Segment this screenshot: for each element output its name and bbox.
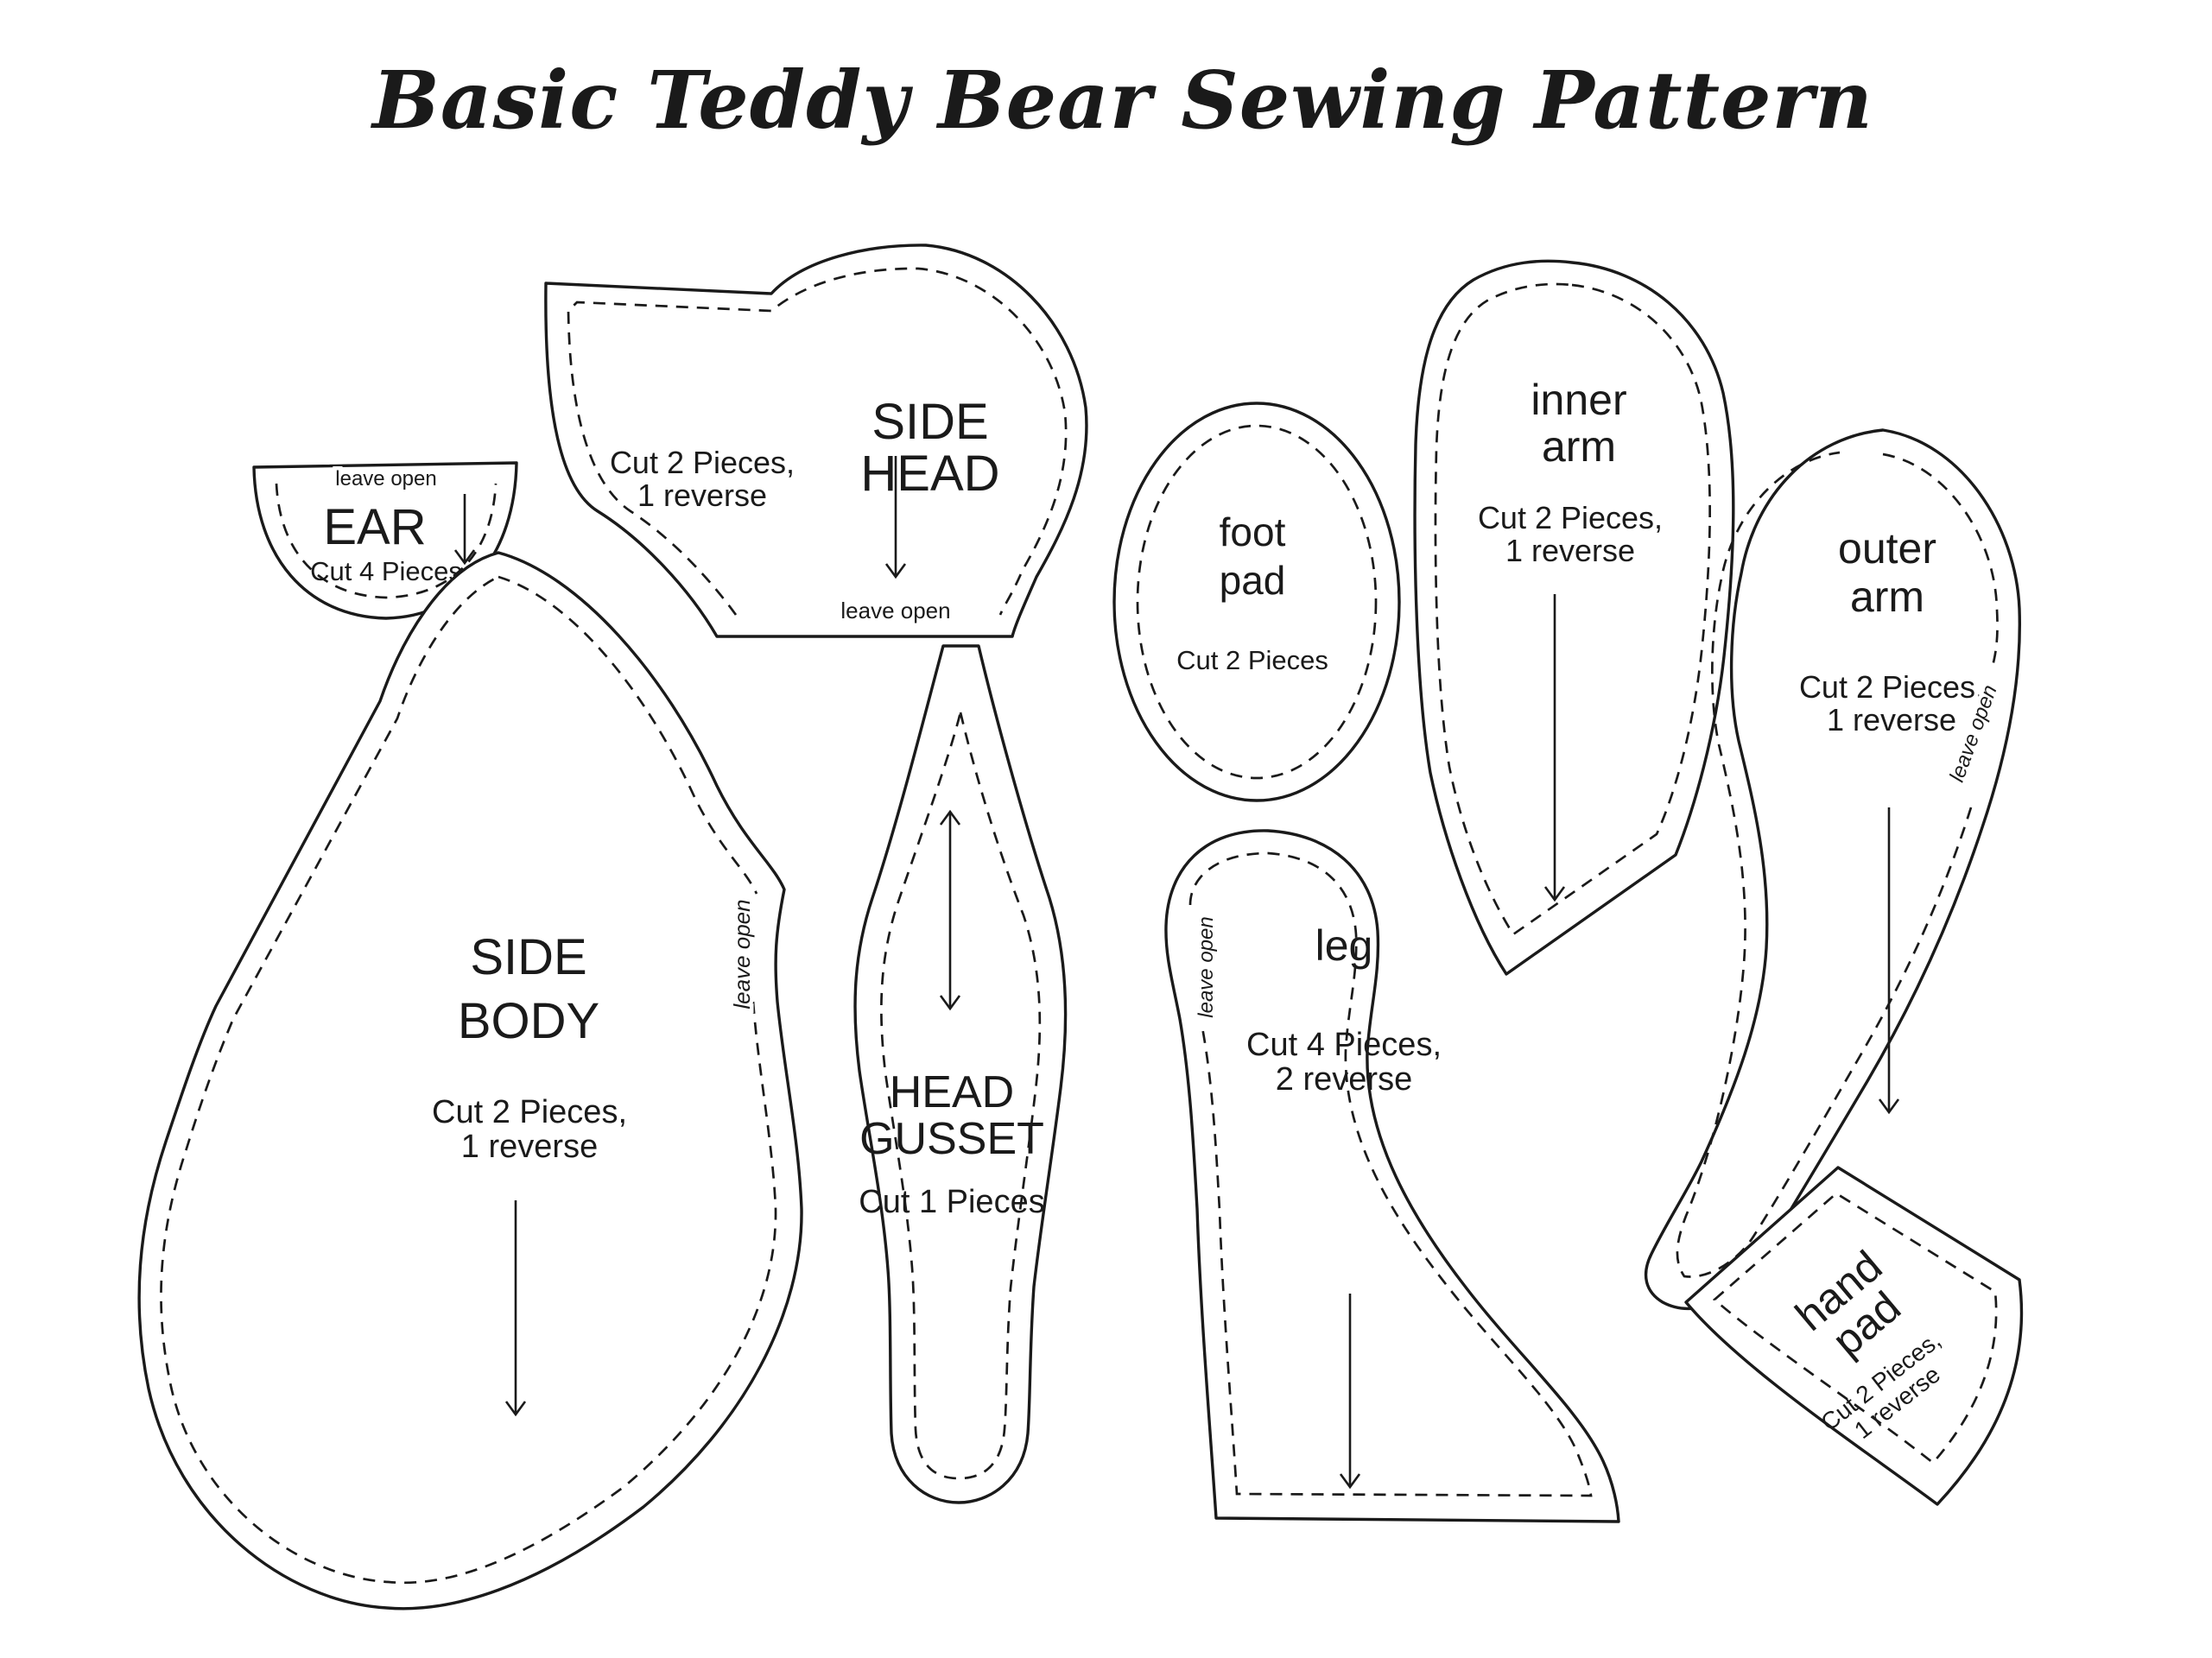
foot-pad-label-line2: pad: [1220, 558, 1286, 603]
side-body-label-line1: SIDE: [470, 929, 586, 985]
side-head-note-leave-open: leave open: [840, 598, 950, 623]
side-head-label-line1: SIDE: [871, 394, 988, 450]
outer-arm-cut-label-line2: 1 reverse: [1827, 702, 1956, 737]
piece-inner-arm: inner arm Cut 2 Pieces, 1 reverse: [1415, 261, 1733, 974]
head-gusset-label-line1: HEAD: [890, 1067, 1014, 1117]
side-body-outline: [139, 553, 802, 1609]
leg-label: leg: [1315, 921, 1373, 970]
outer-arm-cut-label-line1: Cut 2 Pieces,: [1799, 669, 1984, 705]
inner-arm-label-line1: inner: [1531, 376, 1626, 424]
inner-arm-outline: [1415, 261, 1733, 974]
ear-cut-label: Cut 4 Pieces: [310, 556, 462, 586]
inner-arm-cut-label-line1: Cut 2 Pieces,: [1478, 500, 1663, 535]
inner-arm-cut-label-line2: 1 reverse: [1505, 533, 1635, 568]
piece-foot-pad: foot pad Cut 2 Pieces: [1114, 403, 1399, 801]
side-head-label-line2: HEAD: [860, 446, 999, 502]
foot-pad-cut-label: Cut 2 Pieces: [1176, 645, 1328, 675]
ear-label: EAR: [323, 499, 426, 555]
inner-arm-label-line2: arm: [1542, 422, 1616, 471]
side-body-label-line2: BODY: [458, 993, 599, 1049]
piece-side-head: SIDE HEAD Cut 2 Pieces, 1 reverse leave …: [546, 245, 1087, 636]
side-body-cut-label-line2: 1 reverse: [461, 1129, 598, 1165]
head-gusset-cut-label: Cut 1 Pieces: [859, 1184, 1044, 1220]
side-head-outline: [546, 245, 1087, 636]
piece-side-body: SIDE BODY Cut 2 Pieces, 1 reverse leave …: [139, 553, 802, 1609]
page-title: Basic Teddy Bear Sewing Pattern: [370, 54, 1873, 147]
outer-arm-label-line2: arm: [1850, 573, 1924, 621]
side-body-cut-label-line1: Cut 2 Pieces,: [432, 1094, 627, 1130]
side-head-cut-label-line1: Cut 2 Pieces,: [610, 445, 795, 480]
head-gusset-label-line2: GUSSET: [859, 1114, 1044, 1164]
piece-head-gusset: HEAD GUSSET Cut 1 Pieces: [855, 646, 1066, 1503]
leg-cut-label-line1: Cut 4 Pieces,: [1246, 1027, 1442, 1063]
foot-pad-label-line1: foot: [1220, 509, 1286, 554]
ear-note-leave-open: leave open: [335, 467, 436, 490]
sewing-pattern-canvas: Basic Teddy Bear Sewing Pattern leave op…: [0, 0, 2212, 1658]
leg-note-leave-open: leave open: [1195, 916, 1218, 1017]
leg-cut-label-line2: 2 reverse: [1276, 1061, 1412, 1098]
outer-arm-label-line1: outer: [1838, 524, 1936, 573]
side-head-cut-label-line2: 1 reverse: [637, 478, 767, 513]
side-body-note-leave-open: leave open: [729, 899, 755, 1009]
